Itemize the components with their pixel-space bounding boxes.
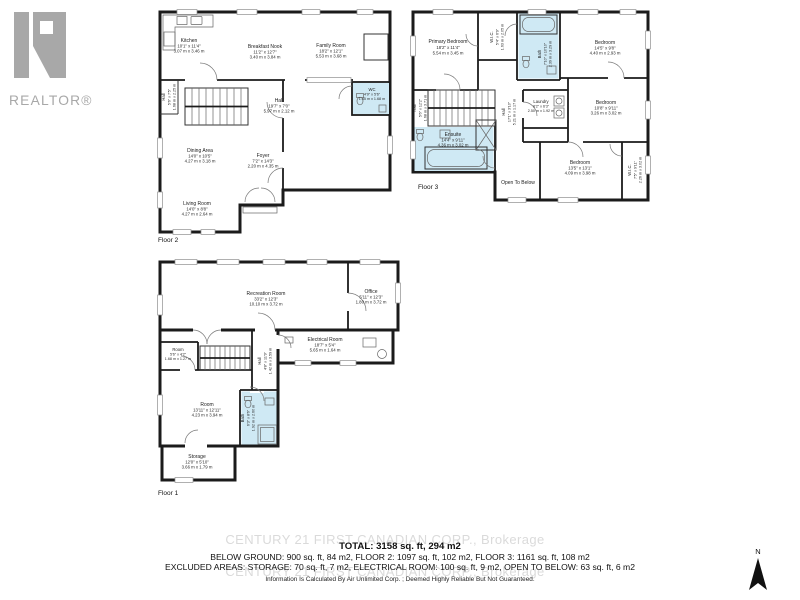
svg-text:7'5" x 9'11": 7'5" x 9'11" <box>634 160 638 179</box>
svg-text:Hall: Hall <box>161 93 166 100</box>
floor-1-plan: Recreation Room 33'2" x 12'3" 10.10 m x … <box>155 255 405 500</box>
svg-text:1.68 m x 1.27 m: 1.68 m x 1.27 m <box>165 357 191 361</box>
svg-text:1.42 m x 3.59 m: 1.42 m x 3.59 m <box>269 348 273 374</box>
svg-text:5'4" x 6'9": 5'4" x 6'9" <box>496 28 500 45</box>
svg-text:Laundry: Laundry <box>533 99 549 104</box>
svg-text:10.10 m x 3.72 m: 10.10 m x 3.72 m <box>249 302 283 307</box>
svg-text:6'3" x 8'6": 6'3" x 8'6" <box>247 409 251 426</box>
svg-text:Open To Below: Open To Below <box>501 180 535 186</box>
svg-text:1.92 m x 2.60 m: 1.92 m x 2.60 m <box>252 405 256 431</box>
summary-disclaimer: Information Is Calculated By Air Unlimit… <box>100 576 700 583</box>
svg-text:5'6" x 7'5": 5'6" x 7'5" <box>168 88 172 105</box>
svg-text:5.97 m x 2.12 m: 5.97 m x 2.12 m <box>264 109 295 114</box>
svg-text:Hall: Hall <box>501 108 506 115</box>
svg-text:5.53 m x 3.68 m: 5.53 m x 3.68 m <box>316 54 347 59</box>
floor-2-plan: Kitchen 10'1" x 11'4" 3.07 m x 3.46 m Br… <box>155 6 400 246</box>
svg-text:3.40 m x 3.84 m: 3.40 m x 3.84 m <box>250 55 281 60</box>
svg-text:17'1" x 3'10": 17'1" x 3'10" <box>508 101 512 122</box>
svg-text:3.07 m x 3.46 m: 3.07 m x 3.46 m <box>174 49 205 54</box>
svg-text:4'9" x 5'6": 4'9" x 5'6" <box>364 93 381 97</box>
svg-text:4.27 m x 3.18 m: 4.27 m x 3.18 m <box>185 159 216 164</box>
svg-text:4.27 m x 2.64 m: 4.27 m x 2.64 m <box>182 212 213 217</box>
realtor-wordmark: REALTOR® <box>9 93 93 108</box>
svg-text:7'10" x 10'10": 7'10" x 10'10" <box>544 42 548 65</box>
svg-text:Room: Room <box>172 347 184 352</box>
svg-text:5.65 m x 1.64 m: 5.65 m x 1.64 m <box>310 348 341 353</box>
svg-text:18'2" x 11'4": 18'2" x 11'4" <box>436 45 460 50</box>
svg-text:Hall: Hall <box>257 357 262 364</box>
realtor-logo: REALTOR® <box>6 10 116 114</box>
svg-text:3.66 m x 1.79 m: 3.66 m x 1.79 m <box>182 465 213 470</box>
svg-text:5.54 m x 3.45 m: 5.54 m x 3.45 m <box>433 51 464 56</box>
svg-text:4.36 m x 3.02 m: 4.36 m x 3.02 m <box>438 143 469 148</box>
svg-text:1.80 m x 3.72 m: 1.80 m x 3.72 m <box>356 300 387 305</box>
summary-floors: BELOW GROUND: 900 sq. ft, 84 m2, FLOOR 2… <box>100 552 700 562</box>
realtor-logo-bar <box>14 12 29 78</box>
svg-text:5'6" x 12'2": 5'6" x 12'2" <box>419 98 423 117</box>
svg-text:2.50 m x 1.92 m: 2.50 m x 1.92 m <box>528 109 554 113</box>
room-label-family-room: Family Room 18'2" x 12'1" 5.53 m x 3.68 … <box>316 43 347 59</box>
svg-text:W.I.C.: W.I.C. <box>489 31 494 42</box>
floorplan-page: CENTURY 21 FIRST CANADIAN CORP., Brokera… <box>0 0 800 600</box>
svg-text:Bath: Bath <box>537 49 542 58</box>
north-arrow: N <box>740 544 776 594</box>
svg-text:W.I.C.: W.I.C. <box>627 164 632 175</box>
svg-text:2.39 m x 3.29 m: 2.39 m x 3.29 m <box>549 41 553 67</box>
svg-text:4'8" x 11'9": 4'8" x 11'9" <box>264 351 268 370</box>
svg-text:2.20 m x 4.35 m: 2.20 m x 4.35 m <box>248 164 279 169</box>
room-label-open-to-below: Open To Below <box>501 180 535 186</box>
floor-3-plan: Primary Bedroom 18'2" x 11'4" 5.54 m x 3… <box>408 6 653 206</box>
svg-text:8'2" x 6'3": 8'2" x 6'3" <box>533 105 550 109</box>
area-summary: TOTAL: 3158 sq. ft, 294 m2 BELOW GROUND:… <box>100 541 700 583</box>
floor2-fireplace-hatch <box>364 34 388 60</box>
north-label: N <box>755 547 760 556</box>
svg-text:1.68 m x 2.25 m: 1.68 m x 2.25 m <box>173 84 177 110</box>
svg-text:1.45 m x 1.68 m: 1.45 m x 1.68 m <box>359 97 385 101</box>
svg-text:WC: WC <box>369 87 376 92</box>
summary-excluded: EXCLUDED AREAS: STORAGE: 70 sq. ft, 7 m2… <box>100 562 700 572</box>
summary-total: TOTAL: 3158 sq. ft, 294 m2 <box>100 541 700 552</box>
svg-text:4.23 m x 3.94 m: 4.23 m x 3.94 m <box>192 413 223 418</box>
svg-text:1.68 m x 3.71 m: 1.68 m x 3.71 m <box>424 95 428 121</box>
svg-text:2.26 m x 3.02 m: 2.26 m x 3.02 m <box>639 157 643 183</box>
svg-text:1.63 m x 2.05 m: 1.63 m x 2.05 m <box>501 24 505 50</box>
realtor-logo-counter <box>40 21 53 34</box>
svg-text:Hall: Hall <box>412 104 417 111</box>
floor-1-label: Floor 1 <box>158 490 179 497</box>
svg-text:Bath: Bath <box>240 413 245 422</box>
room-label-dining-area: Dining Area 14'0" x 10'5" 4.27 m x 3.18 … <box>185 148 216 164</box>
svg-text:4.40 m x 2.93 m: 4.40 m x 2.93 m <box>590 51 621 56</box>
svg-text:5'6" x 4'2": 5'6" x 4'2" <box>170 353 187 357</box>
floor-3-label: Floor 3 <box>418 184 439 191</box>
north-arrow-icon <box>749 558 767 590</box>
svg-text:4.09 m x 3.98 m: 4.09 m x 3.98 m <box>565 171 596 176</box>
svg-text:3.26 m x 3.02 m: 3.26 m x 3.02 m <box>591 111 622 116</box>
floor3-bath-floor <box>519 14 559 79</box>
floor-2-label: Floor 2 <box>158 237 179 244</box>
svg-text:5.21 m x 1.17 m: 5.21 m x 1.17 m <box>513 99 517 125</box>
